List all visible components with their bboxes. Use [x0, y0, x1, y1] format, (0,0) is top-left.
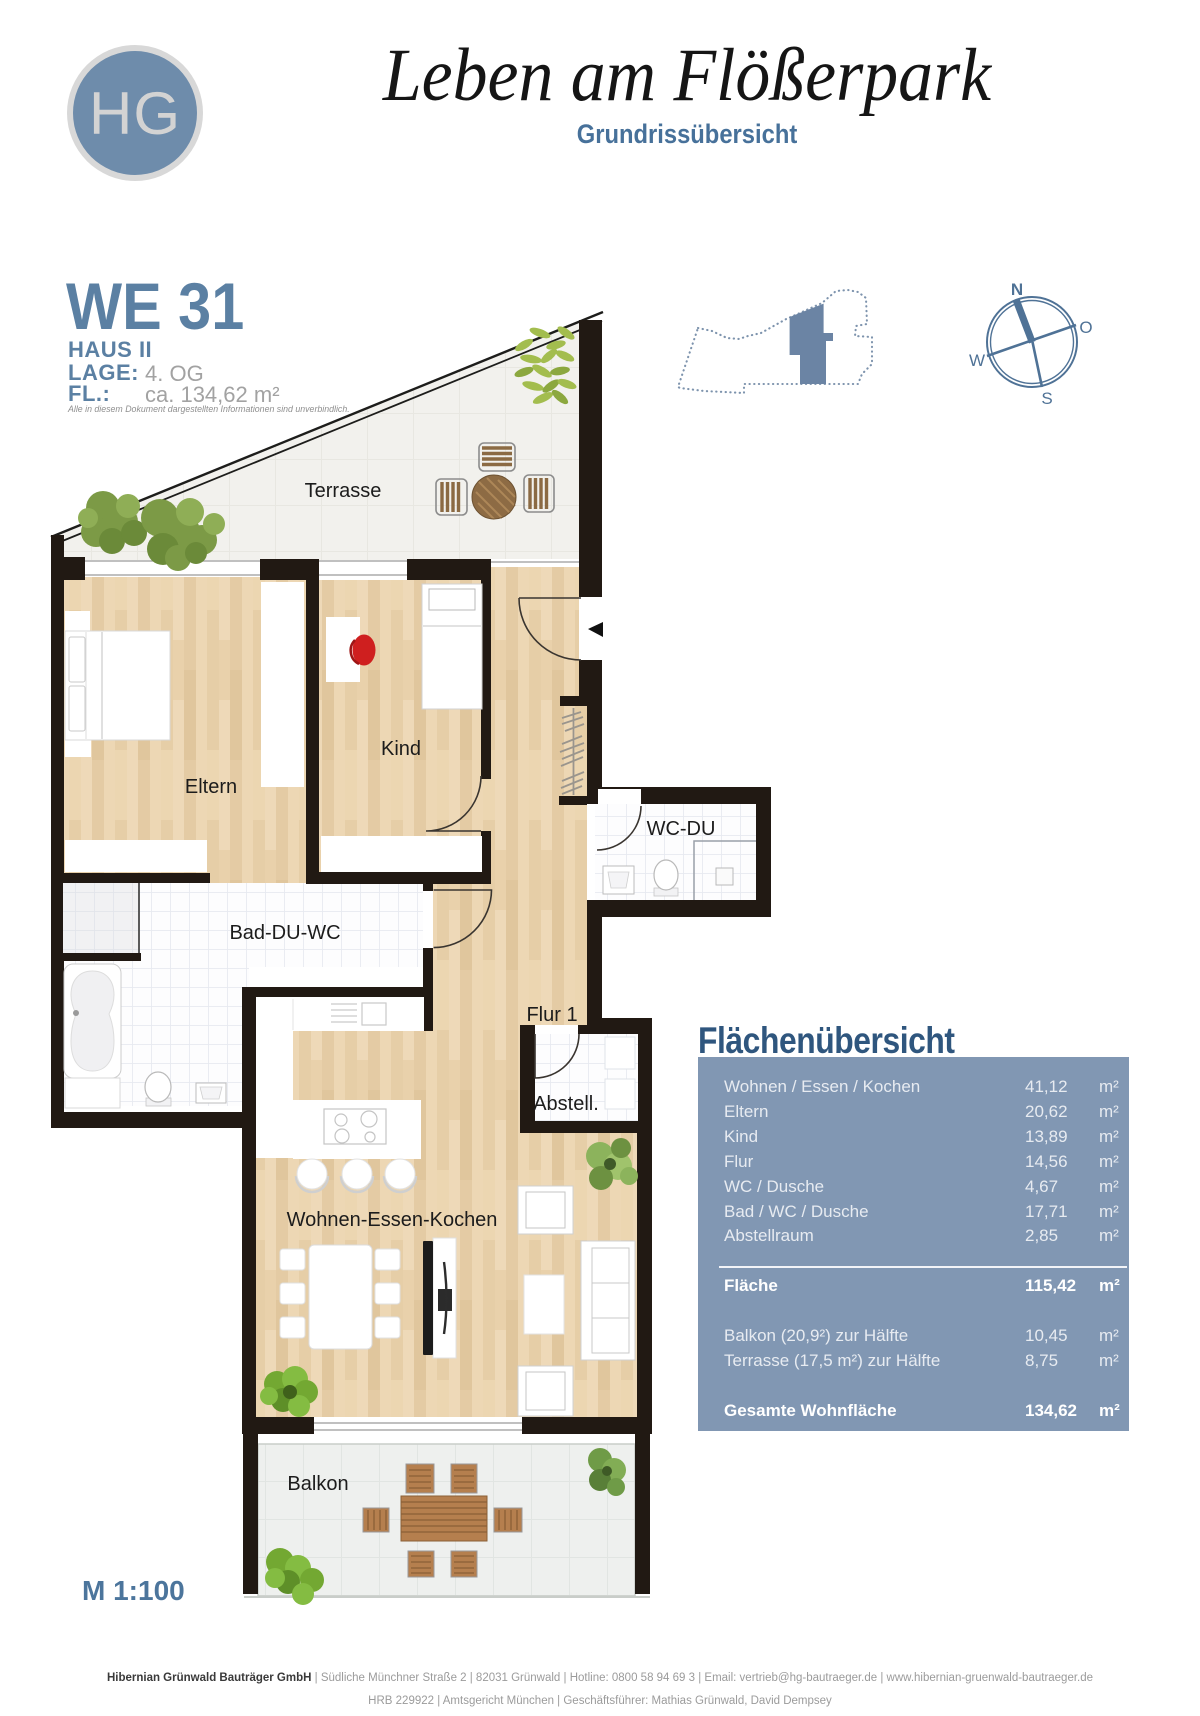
- svg-text:Bad-DU-WC: Bad-DU-WC: [229, 922, 340, 944]
- svg-text:Abstell.: Abstell.: [533, 1093, 599, 1115]
- svg-text:W: W: [969, 351, 985, 370]
- svg-text:Flur 1: Flur 1: [526, 1004, 577, 1026]
- svg-text:O: O: [1079, 318, 1092, 337]
- svg-text:N: N: [1011, 280, 1023, 299]
- svg-text:Eltern: Eltern: [185, 776, 237, 798]
- svg-text:S: S: [1041, 389, 1052, 408]
- svg-text:Balkon: Balkon: [287, 1473, 348, 1495]
- svg-text:WC-DU: WC-DU: [647, 818, 716, 840]
- svg-text:Kind: Kind: [381, 738, 421, 760]
- svg-text:Terrasse: Terrasse: [305, 480, 382, 502]
- svg-text:Wohnen-Essen-Kochen: Wohnen-Essen-Kochen: [287, 1209, 498, 1231]
